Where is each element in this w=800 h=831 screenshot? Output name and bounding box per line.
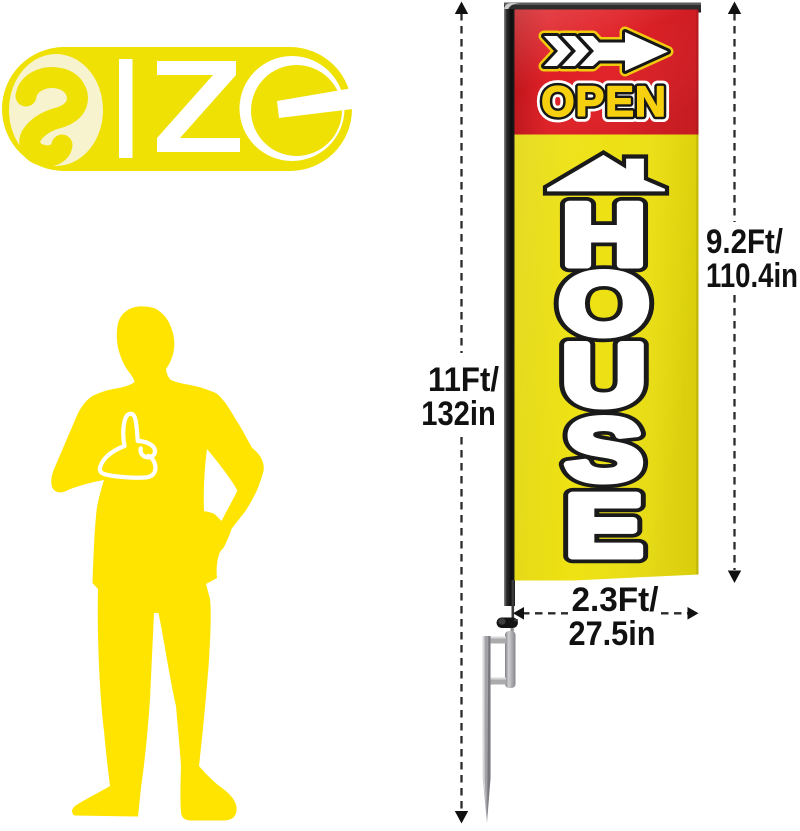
svg-text:110.4in: 110.4in [706, 257, 798, 295]
svg-text:E: E [565, 476, 643, 575]
svg-text:2.3Ft/: 2.3Ft/ [572, 581, 660, 619]
svg-text:27.5in: 27.5in [569, 615, 656, 653]
svg-text:132in: 132in [421, 395, 496, 433]
svg-text:9.2Ft/: 9.2Ft/ [706, 223, 783, 261]
svg-text:OPEN: OPEN [541, 78, 667, 126]
svg-text:11Ft/: 11Ft/ [428, 361, 500, 399]
